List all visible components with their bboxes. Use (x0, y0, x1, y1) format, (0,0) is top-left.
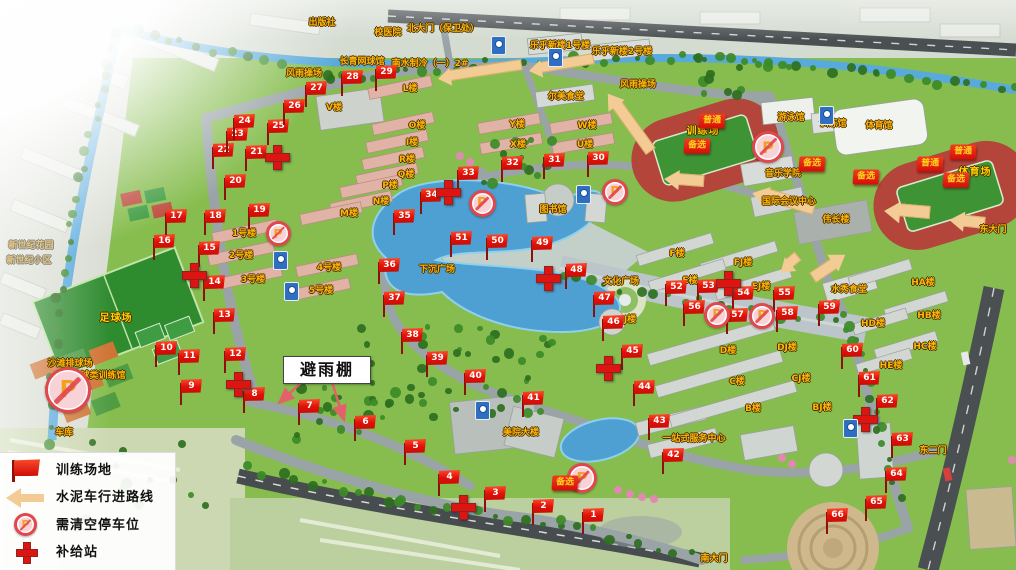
rain-shelter-callout: 避雨棚 (283, 356, 371, 384)
legend-item: 水泥车行进路线 (0, 486, 175, 510)
supply-cross-icon (6, 541, 46, 565)
flag-icon (6, 458, 46, 482)
legend-label: 补给站 (56, 545, 98, 560)
route-arrow-icon (6, 486, 46, 510)
arrow-bar (20, 494, 44, 502)
no-parking-icon: P (14, 513, 37, 536)
map-legend: 训练场地水泥车行进路线P需清空停车位补给站 (0, 452, 176, 570)
campus-map: 出版社校医院北大门（保卫处）长青网球馆南水制冷（一）2#风雨操场乐乎新楼1号楼乐… (0, 0, 1016, 570)
no-parking-icon: P (6, 513, 46, 537)
legend-item: 训练场地 (0, 458, 175, 482)
arrow-head (6, 488, 21, 508)
flag-face (14, 459, 40, 476)
legend-label: 水泥车行进路线 (56, 490, 154, 505)
legend-label: 需清空停车位 (56, 518, 140, 533)
supply-cross-icon (16, 542, 38, 564)
legend-label: 训练场地 (56, 463, 112, 478)
legend-item: 补给站 (0, 541, 175, 565)
legend-item: P需清空停车位 (0, 513, 175, 537)
